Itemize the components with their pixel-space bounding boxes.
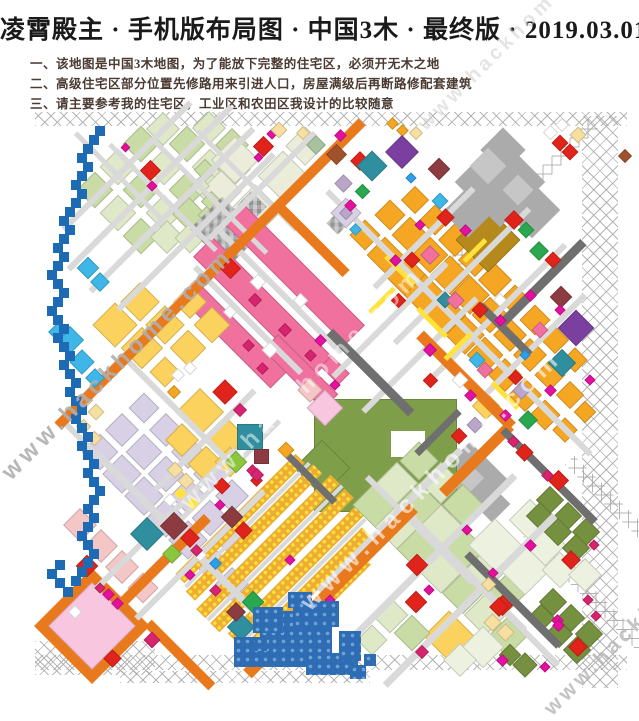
map-block — [255, 637, 269, 651]
map-block — [339, 631, 361, 661]
map-block — [350, 665, 366, 679]
screenshot-root: { "header": { "title": "凌霄殿主 · 手机版布局图 · … — [0, 0, 639, 700]
map-block — [405, 172, 416, 183]
map-block — [354, 183, 370, 199]
map-block — [237, 424, 263, 450]
map-block — [253, 607, 283, 633]
map-block — [618, 149, 632, 163]
map-block — [128, 392, 159, 423]
map-block — [88, 404, 105, 421]
map-block — [35, 112, 627, 126]
map-block — [71, 576, 81, 586]
map-block — [170, 330, 207, 367]
layout-map — [0, 0, 639, 700]
map-block — [334, 174, 352, 192]
map-block — [364, 654, 376, 666]
map-block — [212, 379, 237, 404]
map-block — [254, 449, 269, 464]
map-block — [405, 591, 428, 614]
map-block — [288, 592, 312, 608]
map-block — [63, 587, 73, 597]
map-block — [409, 126, 423, 140]
map-block — [385, 135, 419, 169]
map-block — [428, 158, 451, 181]
map-block — [401, 186, 429, 214]
map-block — [467, 417, 484, 434]
